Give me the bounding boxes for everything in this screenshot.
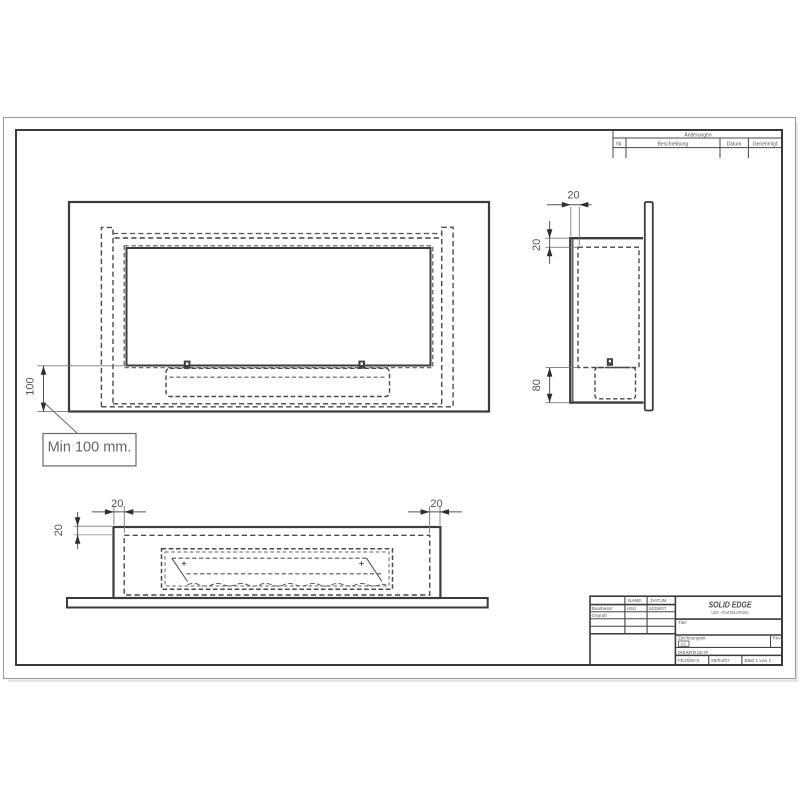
svg-text:20: 20: [531, 239, 543, 251]
svg-text:Titel: Titel: [678, 620, 687, 625]
svg-text:Nr.: Nr.: [616, 142, 622, 148]
svg-text:20: 20: [567, 190, 579, 202]
svg-text:Beschreibung: Beschreibung: [658, 142, 689, 148]
svg-text:Min 100 mm.: Min 100 mm.: [48, 440, 132, 456]
svg-text:HSU: HSU: [627, 606, 637, 611]
svg-text:Änderungen: Änderungen: [684, 131, 711, 138]
svg-text:Genehmigt: Genehmigt: [753, 142, 778, 148]
svg-text:Bearbeitet: Bearbeitet: [592, 606, 614, 611]
svg-text:20: 20: [430, 498, 442, 510]
svg-text:Blatt 1 von 1: Blatt 1 von 1: [745, 658, 772, 664]
svg-text:24/06/07: 24/06/07: [649, 606, 667, 611]
svg-text:SOLID EDGE: SOLID EDGE: [709, 600, 752, 610]
svg-text:Zeichnungsnr.: Zeichnungsnr.: [678, 636, 707, 641]
svg-text:Rev: Rev: [773, 636, 782, 641]
svg-text:100: 100: [25, 377, 37, 395]
svg-text:UGS – PLM SOLUTIONS: UGS – PLM SOLUTIONS: [712, 610, 749, 615]
svg-text:80: 80: [531, 379, 543, 391]
svg-text:20: 20: [111, 498, 123, 510]
svg-text:Geprüft: Geprüft: [592, 613, 608, 618]
svg-text:A2: A2: [681, 641, 687, 646]
svg-text:20: 20: [53, 524, 65, 536]
svg-text:DATUM: DATUM: [651, 598, 667, 603]
svg-text:29/04/07: 29/04/07: [711, 658, 730, 664]
svg-text:Datum: Datum: [727, 142, 742, 148]
svg-text:FE2005-S: FE2005-S: [678, 658, 700, 664]
svg-text:NAME: NAME: [628, 598, 641, 603]
